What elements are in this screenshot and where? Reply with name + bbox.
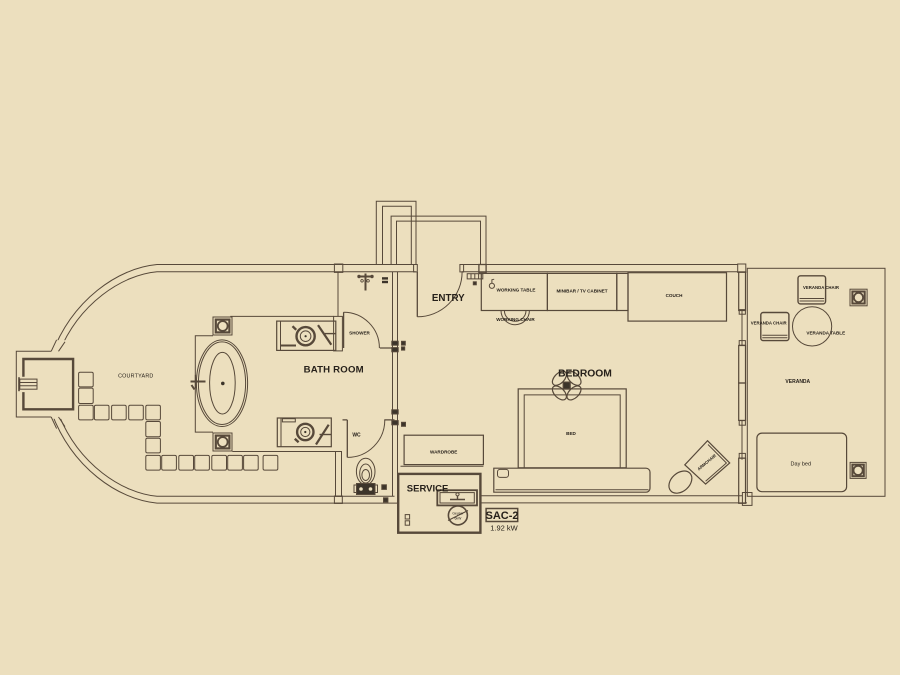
svg-text:ENTRY: ENTRY (432, 293, 465, 304)
svg-text:COUCH: COUCH (666, 293, 684, 298)
svg-text:BEDROOM: BEDROOM (558, 368, 612, 379)
svg-text:SAC-2: SAC-2 (485, 510, 518, 522)
svg-text:6kW: 6kW (455, 517, 463, 521)
svg-text:Day bed: Day bed (791, 462, 812, 468)
svg-text:VERANDA CHAIR: VERANDA CHAIR (803, 285, 840, 290)
svg-text:VERANDA TABLE: VERANDA TABLE (806, 331, 845, 336)
svg-text:VERANDA: VERANDA (785, 379, 810, 385)
svg-text:COURTYARD: COURTYARD (118, 374, 153, 380)
svg-text:BED: BED (566, 431, 576, 436)
svg-text:WC: WC (352, 432, 361, 438)
svg-text:MINIBAR / TV CABINET: MINIBAR / TV CABINET (556, 289, 607, 294)
svg-text:1.92 kW: 1.92 kW (490, 524, 518, 533)
svg-text:WARDROBE: WARDROBE (430, 449, 457, 454)
svg-text:VERANDA CHAIR: VERANDA CHAIR (751, 320, 788, 325)
svg-text:WORKING TABLE: WORKING TABLE (497, 287, 536, 292)
svg-text:SHOWER: SHOWER (349, 330, 370, 335)
svg-text:WORKING CHAIR: WORKING CHAIR (496, 317, 535, 322)
svg-text:BATH ROOM: BATH ROOM (304, 364, 364, 375)
svg-text:Geyser: Geyser (452, 512, 464, 516)
svg-text:SERVICE: SERVICE (407, 484, 449, 495)
